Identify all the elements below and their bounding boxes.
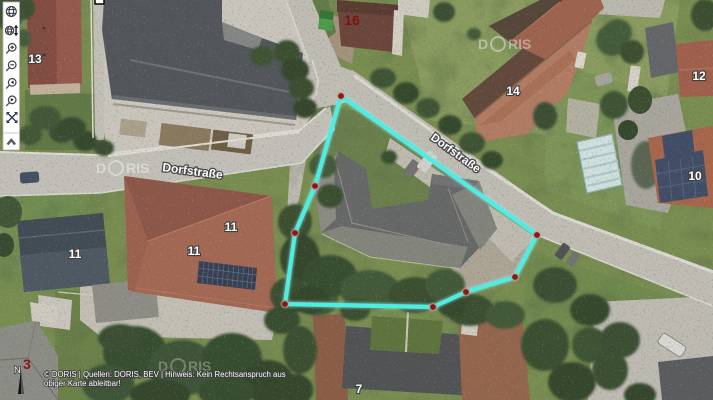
svg-text:14: 14 bbox=[506, 84, 520, 98]
svg-text:11: 11 bbox=[225, 220, 238, 234]
svg-text:12: 12 bbox=[692, 69, 706, 83]
svg-text:obiger Karte ableitbar!: obiger Karte ableitbar! bbox=[44, 379, 121, 388]
svg-text:RIS: RIS bbox=[126, 160, 149, 176]
svg-text:RIS: RIS bbox=[508, 36, 531, 52]
svg-text:11: 11 bbox=[69, 247, 82, 261]
svg-text:10: 10 bbox=[688, 169, 702, 183]
svg-text:D: D bbox=[478, 36, 488, 52]
svg-text:7: 7 bbox=[356, 382, 363, 396]
svg-text:16: 16 bbox=[344, 12, 360, 28]
svg-text:3: 3 bbox=[23, 356, 31, 372]
svg-text:11: 11 bbox=[188, 244, 201, 258]
svg-text:N: N bbox=[14, 365, 21, 376]
svg-text:© DORIS | Quellen: DORIS, BEV: © DORIS | Quellen: DORIS, BEV | Hinweis:… bbox=[44, 370, 286, 379]
svg-text:13: 13 bbox=[28, 52, 42, 66]
svg-text:D: D bbox=[96, 160, 106, 176]
